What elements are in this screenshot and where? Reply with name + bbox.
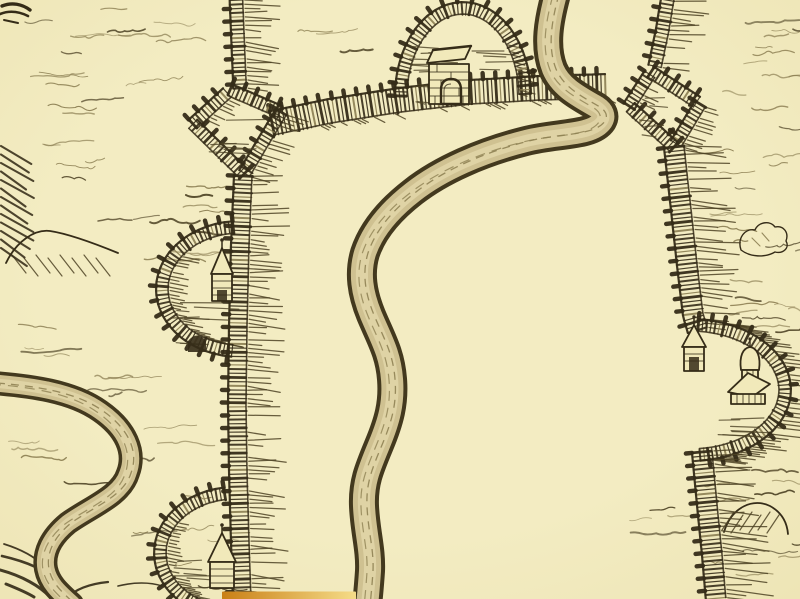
watchtower-body [210,562,234,588]
house-face [731,394,765,404]
engraved-map: Engraved map detail: palisaded fortifica… [0,0,800,599]
dome [740,347,759,370]
wall-tower-door [689,357,699,371]
watchtower-finial-ball [220,523,224,527]
bottom-accent-strip [222,592,356,599]
wall-tower-finial-ball [692,315,695,318]
watchtower-finial-ball [220,238,224,242]
watchtower-door [217,290,227,301]
gatehouse [427,46,471,104]
dome-finial-ball [748,337,751,340]
